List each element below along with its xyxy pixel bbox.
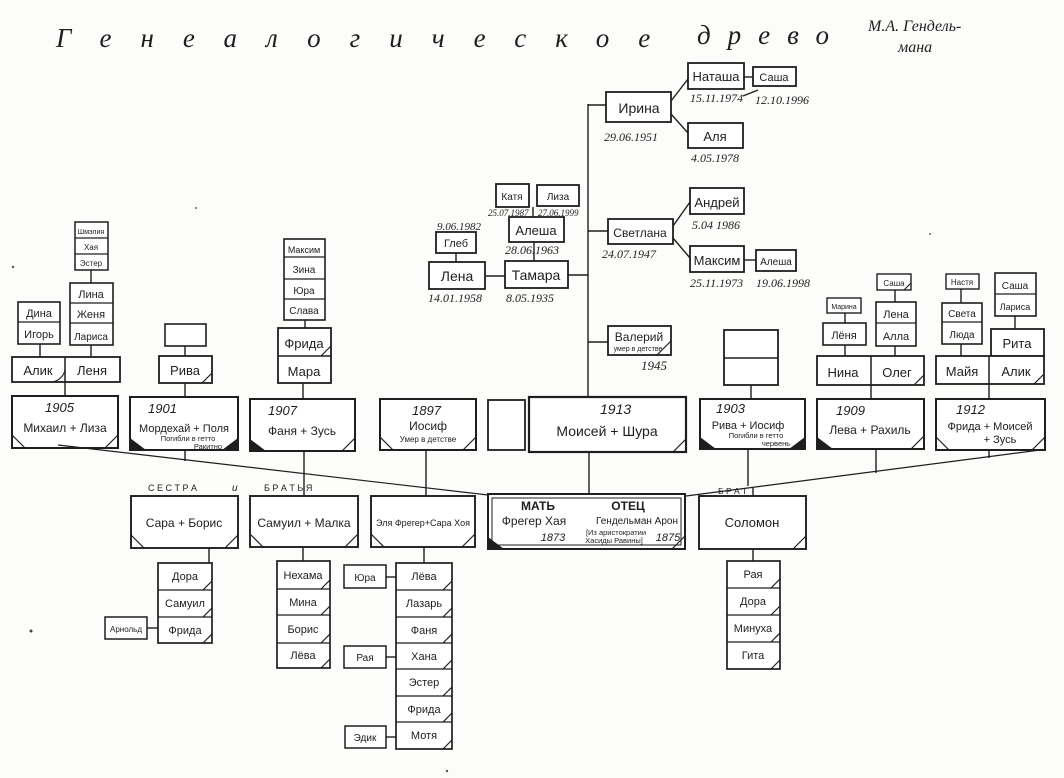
svg-text:1909: 1909 xyxy=(836,403,865,418)
svg-text:1873: 1873 xyxy=(541,532,566,544)
svg-text:5.04 1986: 5.04 1986 xyxy=(692,218,740,232)
svg-text:Алеша: Алеша xyxy=(515,223,557,238)
svg-text:1901: 1901 xyxy=(148,401,177,416)
svg-text:Рива: Рива xyxy=(170,363,201,378)
svg-text:Максим: Максим xyxy=(288,245,320,255)
svg-text:Умер в детстве: Умер в детстве xyxy=(400,435,457,444)
svg-text:Моисей + Шура: Моисей + Шура xyxy=(556,423,657,439)
svg-text:червень: червень xyxy=(762,439,790,448)
svg-text:мана: мана xyxy=(897,39,932,56)
svg-text:Хасиды Равины]: Хасиды Равины] xyxy=(585,536,643,545)
svg-text:4.05.1978: 4.05.1978 xyxy=(691,151,739,165)
svg-text:Фрегер Хая: Фрегер Хая xyxy=(502,514,566,528)
svg-text:Лазарь: Лазарь xyxy=(406,598,442,610)
svg-text:Игорь: Игорь xyxy=(24,329,54,341)
svg-text:1912: 1912 xyxy=(956,402,986,417)
svg-text:умер в детстве: умер в детстве xyxy=(614,346,663,353)
svg-text:1913: 1913 xyxy=(600,401,631,417)
svg-text:Эля Фрегер+Сара Хоя: Эля Фрегер+Сара Хоя xyxy=(376,518,470,528)
svg-text:МАТЬ: МАТЬ xyxy=(521,499,555,513)
svg-text:Борис: Борис xyxy=(287,624,319,636)
svg-text:25.11.1973: 25.11.1973 xyxy=(690,276,743,290)
svg-text:+ Зусь: + Зусь xyxy=(984,434,1017,446)
svg-text:Фрида: Фрида xyxy=(168,625,202,637)
svg-text:Саша: Саша xyxy=(883,279,905,288)
svg-text:28.06.1963: 28.06.1963 xyxy=(505,243,559,257)
svg-text:Эстер: Эстер xyxy=(80,259,103,268)
svg-text:14.01.1958: 14.01.1958 xyxy=(428,291,482,305)
svg-text:Гендельман Арон: Гендельман Арон xyxy=(596,516,678,527)
svg-text:Глеб: Глеб xyxy=(444,238,468,250)
svg-text:1907: 1907 xyxy=(268,403,298,418)
svg-text:ОТЕЦ: ОТЕЦ xyxy=(611,499,645,513)
svg-text:Эдик: Эдик xyxy=(354,733,377,744)
svg-text:1905: 1905 xyxy=(45,400,75,415)
svg-text:Дора: Дора xyxy=(740,596,767,608)
svg-text:Шмэлия: Шмэлия xyxy=(78,229,105,236)
svg-text:Алла: Алла xyxy=(883,331,910,343)
svg-text:Нехама: Нехама xyxy=(284,570,324,582)
svg-text:и: и xyxy=(232,483,238,494)
svg-text:Генеалогическое: Генеалогическое xyxy=(55,23,679,53)
svg-text:Алеша: Алеша xyxy=(760,257,792,268)
svg-text:С Е С Т Р А: С Е С Т Р А xyxy=(148,483,197,493)
svg-text:Лина: Лина xyxy=(78,289,104,301)
svg-text:15.11.1974: 15.11.1974 xyxy=(690,91,743,105)
svg-text:1875: 1875 xyxy=(656,532,681,544)
svg-text:Мотя: Мотя xyxy=(411,730,437,742)
svg-text:Женя: Женя xyxy=(77,309,105,321)
svg-text:1897: 1897 xyxy=(412,403,442,418)
svg-text:Марина: Марина xyxy=(831,304,856,311)
svg-text:Лиза: Лиза xyxy=(547,192,570,203)
svg-text:Иосиф: Иосиф xyxy=(409,419,447,433)
svg-text:Хая: Хая xyxy=(84,243,98,252)
svg-text:Люда: Люда xyxy=(949,330,975,341)
svg-text:Дина: Дина xyxy=(26,308,53,320)
svg-text:Б Р А Т Ь Я: Б Р А Т Ь Я xyxy=(264,483,312,493)
svg-text:Ирина: Ирина xyxy=(618,100,659,116)
svg-text:Мара: Мара xyxy=(288,364,321,379)
svg-text:Тамара: Тамара xyxy=(512,267,561,283)
svg-text:Лариса: Лариса xyxy=(1000,302,1030,312)
svg-text:Фрида + Моисей: Фрида + Моисей xyxy=(947,421,1032,433)
svg-text:Олег: Олег xyxy=(882,365,912,380)
svg-text:Саша: Саша xyxy=(759,72,789,84)
svg-text:24.07.1947: 24.07.1947 xyxy=(602,247,657,261)
svg-text:древо: древо xyxy=(697,20,846,50)
svg-text:Рая: Рая xyxy=(743,569,762,581)
svg-text:Лёва: Лёва xyxy=(411,571,437,583)
svg-text:М.А. Гендель-: М.А. Гендель- xyxy=(867,18,961,35)
svg-text:Ракитно: Ракитно xyxy=(194,442,222,451)
svg-text:Юра: Юра xyxy=(293,286,315,297)
svg-text:Максим: Максим xyxy=(694,253,741,268)
svg-text:Лена: Лена xyxy=(883,309,909,321)
svg-text:Лёня: Лёня xyxy=(831,330,856,342)
svg-text:Фаня: Фаня xyxy=(411,625,438,637)
svg-text:Светлана: Светлана xyxy=(613,226,667,240)
svg-text:Света: Света xyxy=(948,309,976,320)
svg-text:12.10.1996: 12.10.1996 xyxy=(755,93,809,107)
svg-text:19.06.1998: 19.06.1998 xyxy=(756,276,810,290)
svg-text:Фрида: Фрида xyxy=(284,336,324,351)
svg-text:Нина: Нина xyxy=(827,365,859,380)
svg-text:Леня: Леня xyxy=(77,363,107,378)
svg-text:Фаня + Зусь: Фаня + Зусь xyxy=(268,424,336,438)
svg-text:Б Р А Т: Б Р А Т xyxy=(718,486,747,496)
svg-text:Майя: Майя xyxy=(946,364,979,379)
svg-text:Дора: Дора xyxy=(172,571,199,583)
svg-text:1945: 1945 xyxy=(641,358,668,373)
svg-text:Валерий: Валерий xyxy=(615,330,663,344)
svg-text:Слава: Слава xyxy=(289,306,319,317)
svg-text:Наташа: Наташа xyxy=(692,69,740,84)
svg-text:Минуха: Минуха xyxy=(734,623,773,635)
svg-text:Лева + Рахиль: Лева + Рахиль xyxy=(829,423,910,437)
svg-text:Михаил + Лиза: Михаил + Лиза xyxy=(23,421,107,435)
svg-text:1903: 1903 xyxy=(716,401,746,416)
svg-text:29.06.1951: 29.06.1951 xyxy=(604,130,658,144)
svg-text:Самуил: Самуил xyxy=(165,598,205,610)
svg-text:Хана: Хана xyxy=(411,651,438,663)
svg-text:Рая: Рая xyxy=(356,653,373,664)
svg-text:Гита: Гита xyxy=(742,650,765,662)
svg-text:Самуил + Малка: Самуил + Малка xyxy=(257,516,351,530)
svg-text:Сара + Борис: Сара + Борис xyxy=(146,516,222,530)
svg-text:Аля: Аля xyxy=(703,129,726,144)
svg-text:Алик: Алик xyxy=(1001,364,1031,379)
svg-text:Юра: Юра xyxy=(354,573,376,584)
svg-text:Соломон: Соломон xyxy=(725,515,780,530)
svg-text:Лёва: Лёва xyxy=(290,650,316,662)
svg-text:Эстер: Эстер xyxy=(409,677,440,689)
svg-text:Настя: Настя xyxy=(951,278,973,287)
svg-text:Алик: Алик xyxy=(23,363,53,378)
svg-text:Саша: Саша xyxy=(1002,281,1029,292)
svg-text:Фрида: Фрида xyxy=(407,704,441,716)
svg-text:Рита: Рита xyxy=(1003,336,1033,351)
svg-text:Арнольд: Арнольд xyxy=(110,625,142,634)
svg-text:Мина: Мина xyxy=(289,597,317,609)
svg-text:8.05.1935: 8.05.1935 xyxy=(506,291,554,305)
svg-text:Катя: Катя xyxy=(501,192,522,203)
svg-text:Лариса: Лариса xyxy=(74,332,108,343)
svg-text:Андрей: Андрей xyxy=(694,195,739,210)
svg-text:Зина: Зина xyxy=(293,265,316,276)
svg-text:Лена: Лена xyxy=(441,268,474,284)
